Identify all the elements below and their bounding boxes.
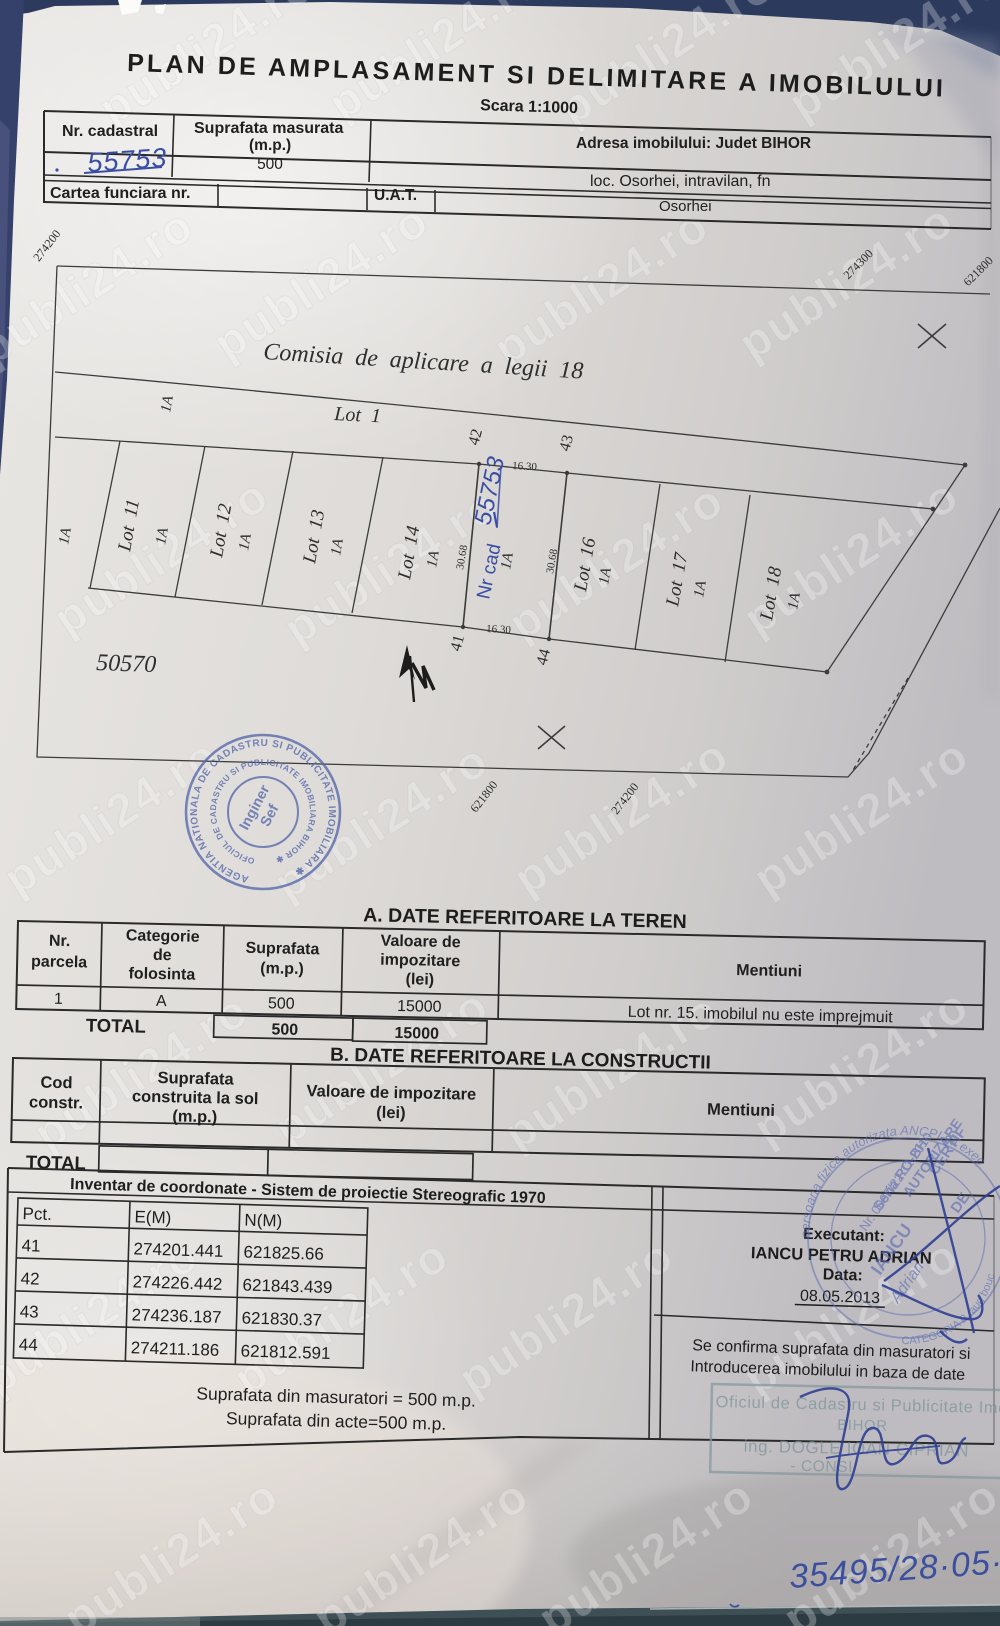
- svg-text:16.30: 16.30: [512, 460, 538, 473]
- svg-text:Mentiuni: Mentiuni: [736, 962, 802, 980]
- svg-text:Nr. cadastral: Nr. cadastral: [62, 123, 158, 140]
- svg-text:Executant:: Executant:: [803, 1226, 885, 1246]
- svg-text:Scara 1:1000: Scara 1:1000: [480, 97, 578, 117]
- svg-text:Cartea funciara nr.: Cartea funciara nr.: [50, 185, 191, 202]
- svg-text:Adresa imobilului: Judet BIHOR: Adresa imobilului: Judet BIHOR: [576, 135, 811, 152]
- svg-text:Suprafata masurata: Suprafata masurata: [194, 120, 343, 137]
- svg-text:500: 500: [257, 156, 283, 173]
- svg-text:15000: 15000: [397, 998, 442, 1016]
- svg-text:Nr.: Nr.: [49, 933, 71, 950]
- svg-text:Categorie: Categorie: [126, 927, 200, 946]
- svg-text:16.30: 16.30: [486, 623, 512, 636]
- svg-text:274211.186: 274211.186: [130, 1338, 219, 1360]
- svg-text:Suprafata: Suprafata: [157, 1069, 234, 1089]
- svg-text:621830.37: 621830.37: [241, 1308, 322, 1329]
- svg-text:Data:: Data:: [822, 1266, 863, 1284]
- svg-text:parcela: parcela: [31, 953, 87, 971]
- svg-text:loc. Osorhei, intravilan, fn: loc. Osorhei, intravilan, fn: [590, 173, 771, 190]
- svg-text:A: A: [156, 993, 167, 1010]
- svg-text:Pct.: Pct.: [22, 1204, 52, 1224]
- svg-text:- CONSI: - CONSI: [790, 1458, 853, 1476]
- svg-text:folosinta: folosinta: [128, 965, 195, 983]
- svg-text:274226.442: 274226.442: [132, 1272, 222, 1294]
- svg-text:1: 1: [54, 991, 63, 1008]
- svg-text:Osorhei: Osorhei: [659, 198, 712, 215]
- svg-text:(m.p.): (m.p.): [172, 1107, 217, 1126]
- svg-text:(lei): (lei): [376, 1104, 406, 1123]
- svg-text:500: 500: [268, 995, 295, 1013]
- svg-text:42: 42: [20, 1269, 39, 1289]
- svg-text:(m.p.): (m.p.): [249, 137, 291, 154]
- svg-text:Suprafata: Suprafata: [245, 940, 319, 959]
- svg-text:U.A.T.: U.A.T.: [374, 187, 417, 204]
- svg-text:(m.p.): (m.p.): [260, 960, 304, 978]
- svg-text:274201.441: 274201.441: [133, 1239, 223, 1261]
- svg-text:(lei): (lei): [405, 971, 434, 989]
- svg-text:constr.: constr.: [29, 1093, 83, 1112]
- svg-text:de: de: [153, 947, 172, 964]
- svg-text:621812.591: 621812.591: [240, 1341, 330, 1363]
- svg-text:E(M): E(M): [134, 1207, 171, 1227]
- svg-text:Mentiuni: Mentiuni: [707, 1101, 775, 1120]
- svg-text:Cod: Cod: [40, 1074, 72, 1093]
- svg-text:621825.66: 621825.66: [243, 1243, 324, 1264]
- svg-text:TOTAL: TOTAL: [86, 1014, 146, 1036]
- svg-text:Valoare de: Valoare de: [380, 933, 460, 952]
- svg-text:43: 43: [19, 1302, 38, 1322]
- svg-text:N(M): N(M): [244, 1211, 282, 1231]
- svg-text:construita la sol: construita la sol: [132, 1088, 259, 1109]
- svg-text:impozitare: impozitare: [380, 952, 460, 971]
- svg-text:274236.187: 274236.187: [131, 1305, 221, 1327]
- svg-text:50570: 50570: [96, 650, 157, 678]
- svg-text:41: 41: [21, 1236, 40, 1256]
- svg-text:15000: 15000: [394, 1025, 439, 1043]
- svg-text:Lot 1: Lot 1: [333, 403, 382, 427]
- svg-text:44: 44: [19, 1335, 38, 1355]
- svg-text:500: 500: [271, 1021, 298, 1039]
- svg-text:Valoare de impozitare: Valoare de impozitare: [306, 1082, 476, 1104]
- svg-text:621843.439: 621843.439: [242, 1276, 332, 1298]
